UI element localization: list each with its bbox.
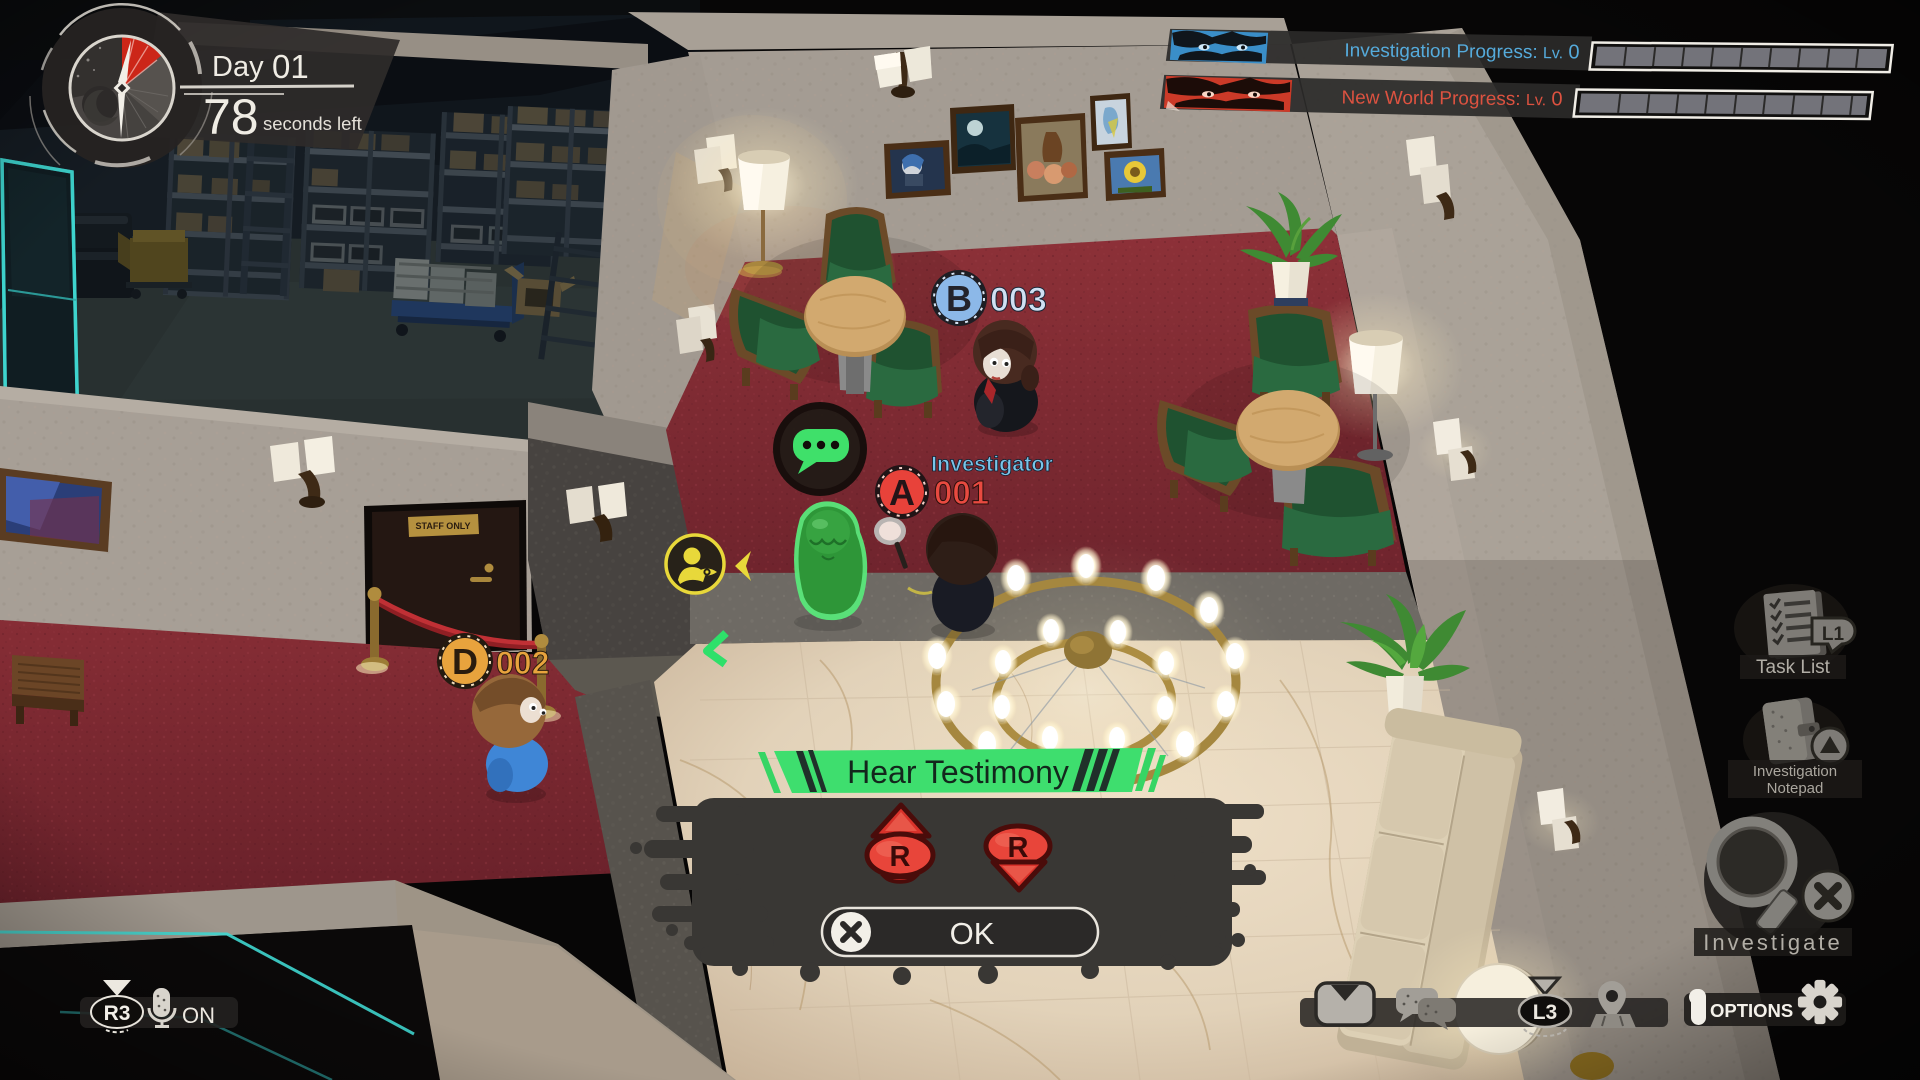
svg-text:B: B	[946, 278, 972, 319]
svg-text:Investigation: Investigation	[1753, 763, 1837, 780]
svg-text:002: 002	[496, 645, 549, 681]
svg-text:D: D	[452, 641, 478, 682]
svg-text:Investigator: Investigator	[931, 452, 1053, 476]
svg-text:R: R	[890, 841, 911, 873]
svg-text:78: 78	[203, 89, 259, 145]
svg-text:Investigate: Investigate	[1703, 930, 1842, 955]
svg-text:R: R	[1008, 832, 1029, 864]
svg-text:001: 001	[934, 474, 989, 511]
svg-text:Hear Testimony: Hear Testimony	[847, 754, 1069, 790]
svg-text:A: A	[889, 472, 915, 513]
svg-text:seconds left: seconds left	[263, 113, 362, 134]
svg-text:01: 01	[272, 48, 309, 85]
svg-text:ON: ON	[182, 1003, 215, 1028]
svg-text:OPTIONS: OPTIONS	[1710, 1000, 1793, 1021]
svg-text:Notepad: Notepad	[1767, 780, 1824, 797]
svg-text:L3: L3	[1533, 1001, 1558, 1024]
svg-text:R3: R3	[104, 1002, 131, 1025]
svg-text:L1: L1	[1822, 624, 1845, 645]
svg-text:Day: Day	[212, 51, 264, 83]
svg-text:OK: OK	[950, 916, 995, 951]
svg-text:Task List: Task List	[1756, 657, 1831, 678]
svg-text:003: 003	[990, 281, 1047, 319]
